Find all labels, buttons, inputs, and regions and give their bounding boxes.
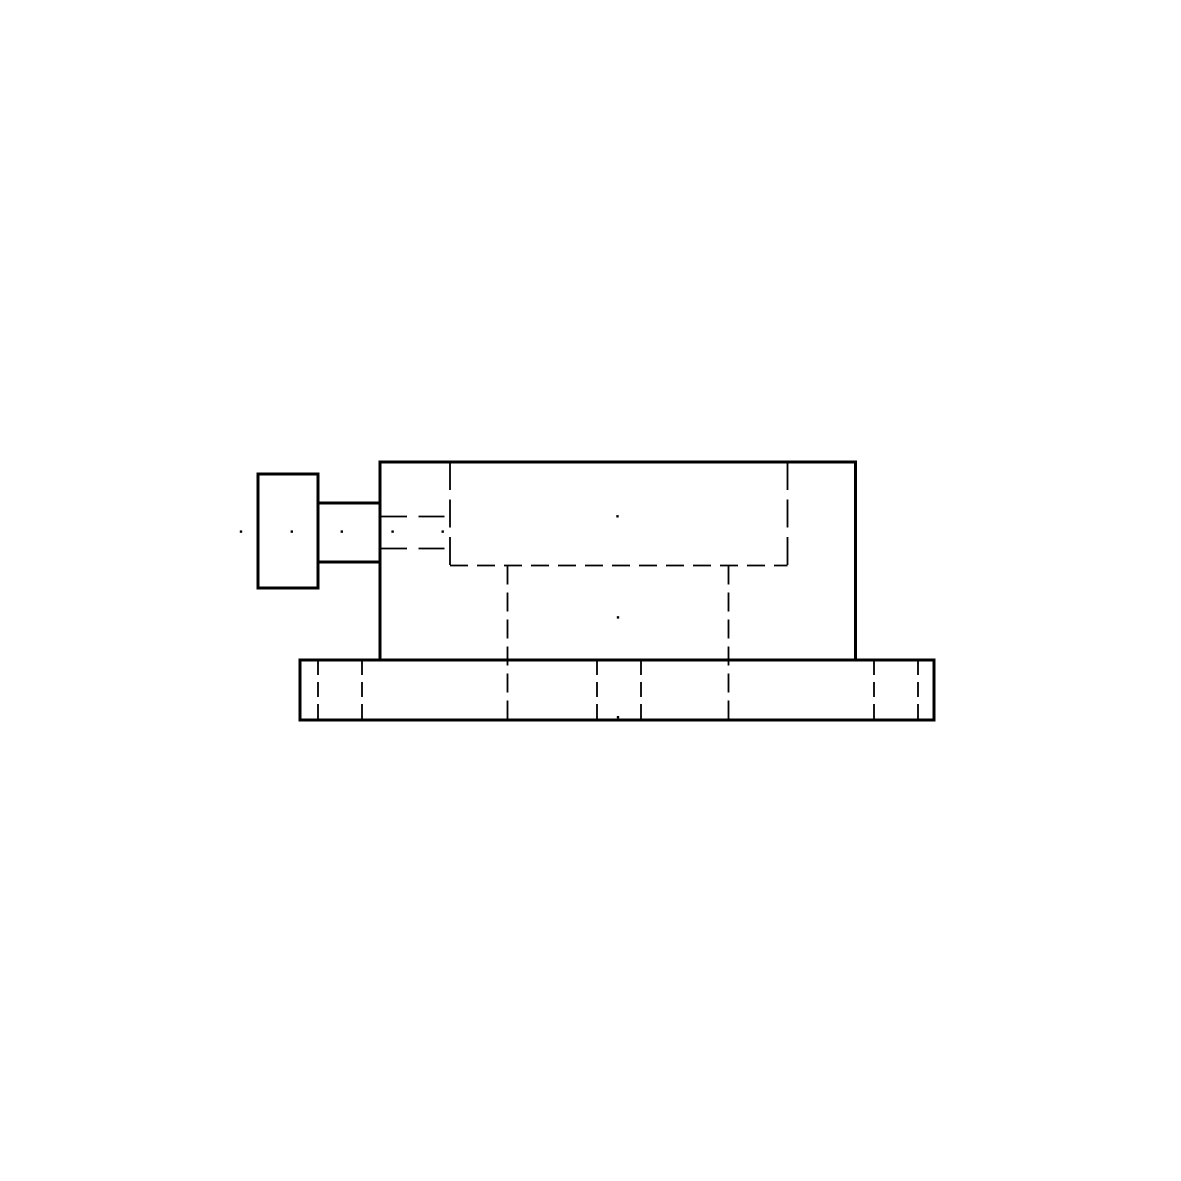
body-outline: [380, 462, 856, 660]
collar-outline: [318, 503, 380, 562]
base-bottom-center-dot: [617, 716, 619, 718]
centerline-dot-2: [291, 530, 293, 532]
channel-center-dot: [617, 616, 619, 618]
base-plate-outline: [300, 660, 934, 720]
drawing-canvas: [0, 0, 1181, 1181]
pocket-center-dot: [616, 515, 618, 517]
centerline-dot-4: [391, 530, 393, 532]
cad-drawing-page: [0, 0, 1181, 1181]
screw-head-outline: [258, 474, 318, 588]
centerline-dot-5: [442, 530, 444, 532]
centerline-dot-3: [341, 530, 343, 532]
centerline-dot-1: [240, 530, 242, 532]
